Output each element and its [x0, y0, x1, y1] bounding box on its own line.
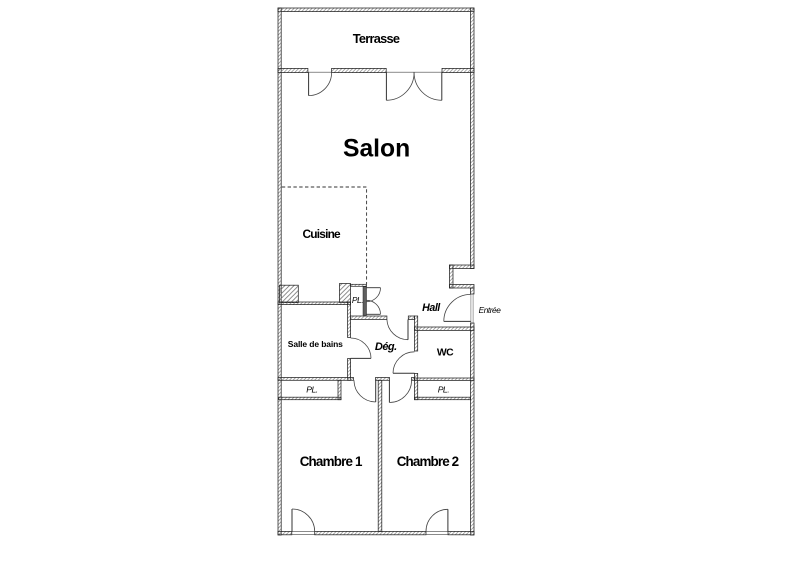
svg-text:Dég.: Dég.: [375, 341, 397, 353]
svg-text:Chambre 1: Chambre 1: [300, 454, 363, 469]
svg-text:Entrée: Entrée: [479, 305, 502, 315]
svg-text:Salle de bains: Salle de bains: [288, 339, 343, 349]
svg-text:Terrasse: Terrasse: [353, 31, 400, 46]
svg-text:PL.: PL.: [306, 385, 318, 395]
svg-text:Chambre 2: Chambre 2: [397, 454, 459, 469]
svg-text:PL.: PL.: [438, 385, 450, 395]
svg-text:PL.: PL.: [352, 295, 363, 305]
svg-text:Salon: Salon: [343, 135, 410, 162]
svg-text:Hall: Hall: [422, 302, 441, 314]
svg-text:Cuisine: Cuisine: [303, 227, 342, 241]
svg-text:WC: WC: [437, 348, 454, 359]
